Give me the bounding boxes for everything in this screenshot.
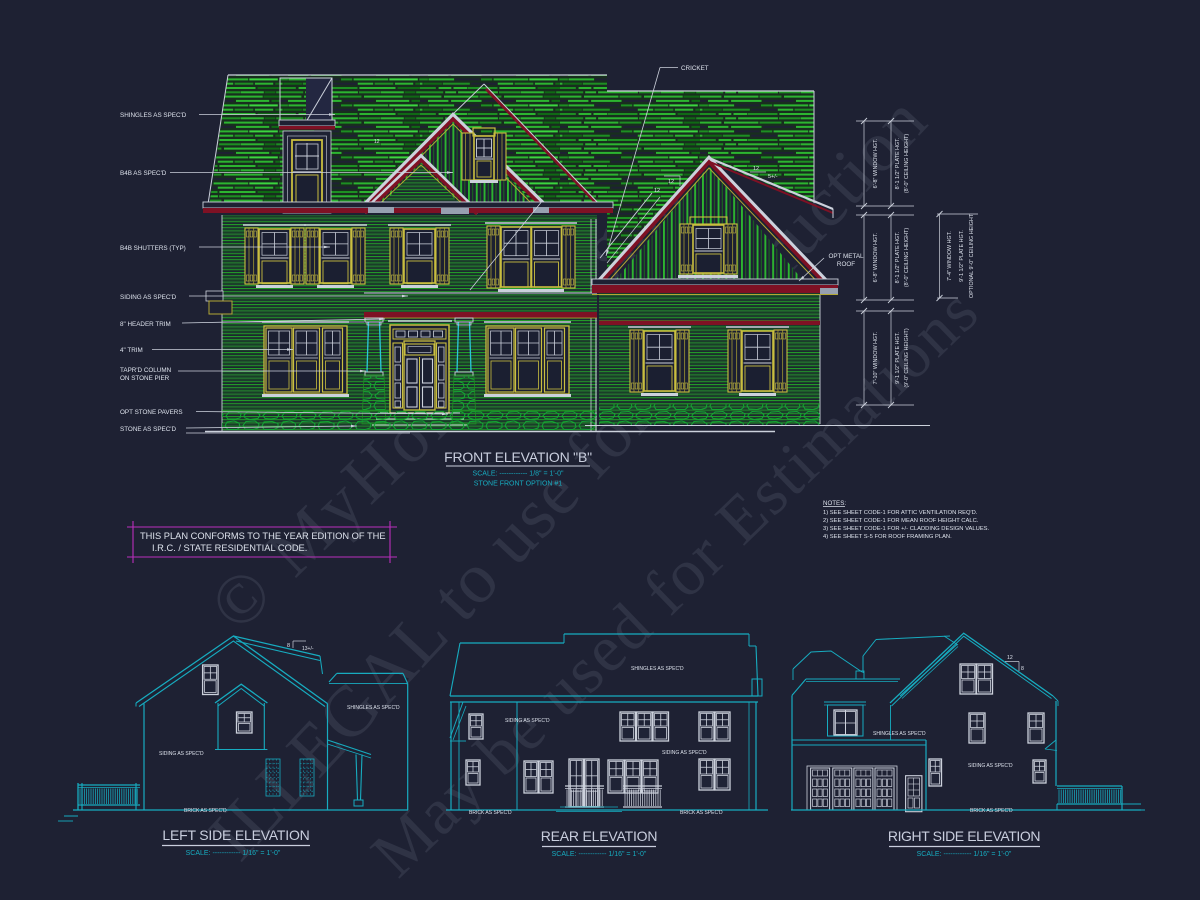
- svg-text:(8'-0" CEILING HEIGHT): (8'-0" CEILING HEIGHT): [904, 134, 910, 193]
- svg-text:NOTES:: NOTES:: [823, 500, 846, 507]
- svg-text:SCALE: ------------ 1/16" = 1': SCALE: ------------ 1/16" = 1'-0": [552, 851, 647, 858]
- svg-text:SCALE: ------------ 1/8" = 1'-: SCALE: ------------ 1/8" = 1'-0": [473, 471, 564, 478]
- svg-text:SIDING AS SPEC'D: SIDING AS SPEC'D: [662, 750, 707, 756]
- svg-text:I.R.C. / STATE RESIDENTIAL COD: I.R.C. / STATE RESIDENTIAL CODE.: [152, 543, 307, 553]
- svg-text:7'-4" WINDOW HGT.: 7'-4" WINDOW HGT.: [947, 231, 953, 281]
- svg-text:6'-8" WINDOW HGT.: 6'-8" WINDOW HGT.: [873, 139, 879, 189]
- svg-text:6'-8" WINDOW HGT.: 6'-8" WINDOW HGT.: [873, 233, 879, 283]
- svg-text:8'-1 1/2" PLATE HGT.: 8'-1 1/2" PLATE HGT.: [895, 232, 901, 284]
- svg-text:12: 12: [1007, 655, 1013, 661]
- svg-text:9'-1 1/2" PLATE HGT.: 9'-1 1/2" PLATE HGT.: [895, 332, 901, 384]
- svg-text:B4B SHUTTERS (TYP): B4B SHUTTERS (TYP): [120, 245, 186, 252]
- svg-text:OPT METAL: OPT METAL: [828, 253, 864, 260]
- svg-text:12: 12: [668, 179, 674, 185]
- svg-text:SHINGLES AS SPEC'D: SHINGLES AS SPEC'D: [347, 705, 400, 711]
- svg-text:SHINGLES AS SPEC'D: SHINGLES AS SPEC'D: [631, 666, 684, 672]
- svg-text:LEFT SIDE ELEVATION: LEFT SIDE ELEVATION: [162, 827, 309, 843]
- svg-text:4" TRIM: 4" TRIM: [120, 347, 143, 354]
- svg-text:13+/-: 13+/-: [302, 646, 314, 652]
- svg-text:2) SEE SHEET CODE-1 FOR MEAN: 2) SEE SHEET CODE-1 FOR MEAN ROOF HEIGHT…: [823, 518, 979, 524]
- svg-text:BRICK AS SPEC'D: BRICK AS SPEC'D: [184, 808, 227, 814]
- svg-text:SIDING AS SPEC'D: SIDING AS SPEC'D: [505, 718, 550, 724]
- svg-text:12: 12: [753, 166, 759, 172]
- svg-text:STONE FRONT OPTION #1: STONE FRONT OPTION #1: [474, 481, 563, 488]
- svg-text:STONE AS SPEC'D: STONE AS SPEC'D: [120, 426, 176, 433]
- svg-text:OPTIONAL 9'-0" CEILING HEIGHT: OPTIONAL 9'-0" CEILING HEIGHT: [969, 213, 975, 298]
- svg-text:1) SEE SHEET CODE-1 FOR ATTIC: 1) SEE SHEET CODE-1 FOR ATTIC VENTILATIO…: [823, 510, 978, 516]
- svg-text:SCALE: ------------ 1/16" = 1': SCALE: ------------ 1/16" = 1'-0": [917, 851, 1012, 858]
- svg-text:SCALE: ------------ 1/16" = 1': SCALE: ------------ 1/16" = 1'-0": [186, 850, 281, 857]
- svg-text:(8'-0" CEILING HEIGHT): (8'-0" CEILING HEIGHT): [904, 228, 910, 287]
- svg-text:THIS PLAN CONFORMS TO THE YEAR: THIS PLAN CONFORMS TO THE YEAR EDITION O…: [140, 531, 386, 541]
- svg-text:B4B AS SPEC'D: B4B AS SPEC'D: [120, 170, 167, 177]
- svg-text:12: 12: [374, 139, 380, 145]
- svg-text:OPT STONE PAVERS: OPT STONE PAVERS: [120, 409, 183, 416]
- svg-text:5+/-: 5+/-: [768, 174, 778, 180]
- svg-text:ON STONE PIER: ON STONE PIER: [120, 375, 170, 382]
- svg-text:BRICK AS SPEC'D: BRICK AS SPEC'D: [680, 810, 723, 816]
- svg-text:8: 8: [287, 643, 290, 649]
- svg-text:CRICKET: CRICKET: [681, 65, 709, 72]
- svg-text:FRONT ELEVATION "B": FRONT ELEVATION "B": [444, 449, 592, 465]
- svg-text:SIDING AS SPEC'D: SIDING AS SPEC'D: [968, 763, 1013, 769]
- svg-text:ROOF: ROOF: [837, 261, 855, 268]
- svg-text:REAR ELEVATION: REAR ELEVATION: [541, 828, 658, 844]
- svg-text:RIGHT SIDE ELEVATION: RIGHT SIDE ELEVATION: [888, 828, 1040, 844]
- svg-text:BRICK AS SPEC'D: BRICK AS SPEC'D: [469, 810, 512, 816]
- svg-text:SHINGLES AS SPEC'D: SHINGLES AS SPEC'D: [120, 112, 187, 119]
- svg-text:SIDING AS SPEC'D: SIDING AS SPEC'D: [120, 294, 177, 301]
- svg-text:3) SEE SHEET CODE-1 FOR +/- C: 3) SEE SHEET CODE-1 FOR +/- CLADDING DES…: [823, 526, 990, 532]
- svg-text:8" HEADER TRIM: 8" HEADER TRIM: [120, 321, 171, 328]
- svg-text:8'-1 1/2" PLATE HGT.: 8'-1 1/2" PLATE HGT.: [895, 138, 901, 190]
- svg-text:4) SEE SHEET S-5 FOR ROOF FRA: 4) SEE SHEET S-5 FOR ROOF FRAMING PLAN.: [823, 534, 952, 540]
- svg-text:BRICK AS SPEC'D: BRICK AS SPEC'D: [970, 808, 1013, 814]
- svg-text:SHINGLES AS SPEC'D: SHINGLES AS SPEC'D: [873, 731, 926, 737]
- svg-text:(9'-0" CEILING HEIGHT): (9'-0" CEILING HEIGHT): [904, 328, 910, 387]
- svg-text:SIDING AS SPEC'D: SIDING AS SPEC'D: [159, 751, 204, 757]
- svg-text:7'-10" WINDOW HGT.: 7'-10" WINDOW HGT.: [873, 332, 879, 385]
- svg-text:TAPR'D COLUMN: TAPR'D COLUMN: [120, 367, 172, 374]
- svg-text:8: 8: [1021, 666, 1024, 672]
- svg-text:12: 12: [654, 188, 660, 194]
- svg-text:9'-1 1/2" PLATE HGT.: 9'-1 1/2" PLATE HGT.: [959, 230, 965, 282]
